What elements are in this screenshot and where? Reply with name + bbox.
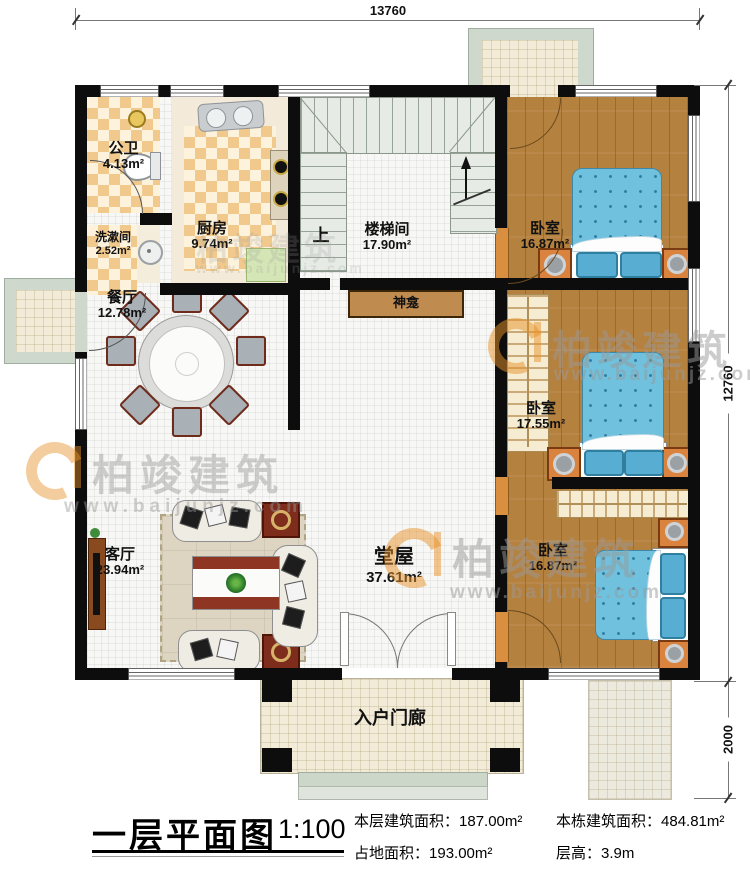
door-threshold-bed3 <box>495 612 509 662</box>
watermark-logo-bar <box>434 532 441 576</box>
porch-column <box>262 748 292 772</box>
window <box>100 85 159 97</box>
shrine-cabinet: 神龛 <box>348 290 464 318</box>
dim-right-porch-value: 2000 <box>721 718 736 762</box>
room-label-bedroom-mid: 卧室 17.55m² <box>498 400 584 432</box>
coffee-table <box>192 556 280 610</box>
pillow <box>576 252 618 278</box>
side-porch-tile <box>16 290 75 352</box>
porch-column <box>262 678 292 702</box>
watermark-url: www.baijunjz.com <box>64 496 308 518</box>
room-label-entry-porch: 入户门廊 <box>290 708 490 729</box>
window <box>575 85 657 97</box>
stair-flight-right <box>450 152 497 234</box>
watermark-url: www.baijunjz.com <box>450 582 662 604</box>
right-patio <box>588 680 672 800</box>
porch-step-2 <box>298 786 488 800</box>
bath-sink <box>128 110 146 128</box>
door-leaf <box>447 612 456 666</box>
pillow <box>620 252 662 278</box>
sofa-pillow <box>284 580 307 603</box>
watermark-logo-bar <box>534 322 541 362</box>
watermark-url: www.baijunjz.com <box>196 260 365 276</box>
door-leaf <box>340 612 349 666</box>
window <box>75 358 87 430</box>
watermark-url: www.baijunjz.com <box>554 364 750 386</box>
pillow <box>660 597 686 639</box>
room-label-bedroom-top: 卧室 16.87m² <box>502 220 588 252</box>
watermark-brand: 柏竣建筑 <box>92 442 284 503</box>
stair-flight-top <box>300 97 497 154</box>
nightstand <box>658 640 690 670</box>
shrine-label: 神龛 <box>393 295 419 310</box>
dim-line-top <box>75 20 700 21</box>
sofa-pillow <box>216 638 239 661</box>
porch-column <box>490 748 520 772</box>
nightstand <box>547 447 581 481</box>
room-label-public-bath: 公卫 4.13m² <box>87 140 160 172</box>
dining-chair <box>236 336 266 366</box>
pillow <box>584 450 624 476</box>
plant <box>226 573 246 593</box>
plant-small <box>90 528 100 538</box>
room-label-washroom: 洗漱间 2.52m² <box>84 231 142 257</box>
room-label-dining: 餐厅 12.78m² <box>72 289 172 321</box>
pillow <box>624 450 664 476</box>
floor-plan: 神龛 <box>0 0 750 873</box>
pillow <box>660 553 686 595</box>
kitchen-sink <box>197 100 265 133</box>
title-underline-thick <box>92 850 344 853</box>
stair-direction-stem <box>465 168 467 200</box>
drawing-scale: 1:100 <box>278 814 346 845</box>
stat-total-area: 本栋建筑面积：484.81m² <box>556 810 724 831</box>
dim-top-value: 13760 <box>352 3 424 18</box>
window <box>128 668 235 680</box>
porch-column <box>490 678 520 702</box>
watermark-brand: 柏竣建筑 <box>452 526 640 587</box>
room-label-living: 客厅 23.94m² <box>70 546 170 578</box>
nightstand <box>658 518 690 548</box>
wardrobe-horizontal <box>556 490 690 518</box>
title-underline-thin <box>92 856 344 857</box>
stat-floor-height: 层高：3.9m <box>556 842 634 863</box>
door-threshold-bed2 <box>495 477 509 515</box>
window <box>170 85 224 97</box>
room-label-stairwell: 楼梯间 17.90m² <box>342 221 432 253</box>
stat-floor-area: 本层建筑面积：187.00m² <box>354 810 522 831</box>
watermark-logo-bar <box>74 446 81 488</box>
stove <box>270 150 290 220</box>
window <box>278 85 370 97</box>
window <box>548 668 660 680</box>
dining-chair <box>172 407 202 437</box>
stat-footprint-area: 占地面积：193.00m² <box>354 842 492 863</box>
window <box>688 115 700 202</box>
